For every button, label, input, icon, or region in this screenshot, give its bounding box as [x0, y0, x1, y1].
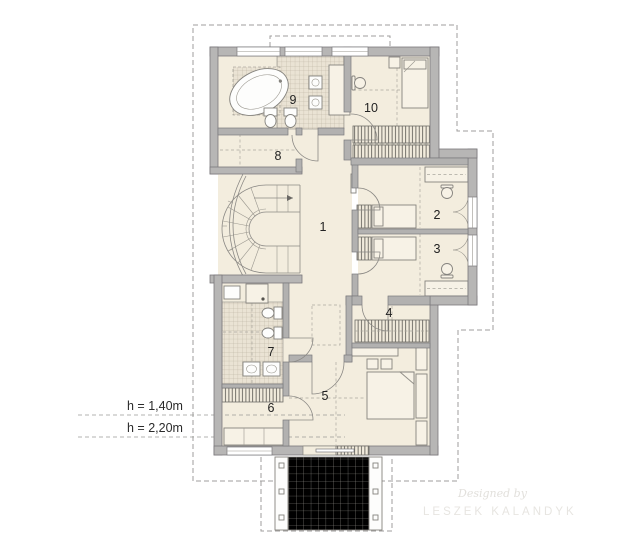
chair-icon — [441, 185, 453, 199]
balcony-door — [303, 446, 369, 455]
room-label-6: 6 — [268, 401, 275, 415]
chair-icon — [441, 264, 453, 279]
room-label-8: 8 — [275, 149, 282, 163]
bed-icon — [402, 58, 428, 108]
height-label-140: h = 1,40m — [127, 399, 183, 413]
watermark: Designed by LESZEK KALANDYK — [423, 487, 577, 518]
wardrobe-icon — [353, 126, 430, 160]
balcony — [261, 457, 392, 531]
nightstand-icon — [389, 57, 400, 68]
room-label-3: 3 — [434, 242, 441, 256]
watermark-credit: Designed by — [457, 487, 528, 500]
height-annotations: h = 1,40m h = 2,20m — [127, 399, 183, 435]
washer-icon — [224, 286, 240, 299]
wardrobe-icon — [222, 388, 283, 402]
bed-icon — [357, 205, 416, 228]
wardrobe-icon — [355, 320, 429, 342]
shower-icon — [246, 284, 268, 303]
watermark-author: LESZEK KALANDYK — [423, 506, 577, 518]
bed-icon — [357, 237, 416, 260]
room-label-7: 7 — [268, 345, 275, 359]
room-label-9: 9 — [290, 93, 297, 107]
floor-plan-drawing: 1 2 3 4 5 6 7 8 9 10 h = 1,40m h = 2,20m… — [0, 0, 638, 556]
room-label-1: 1 — [320, 220, 327, 234]
height-label-220: h = 2,20m — [127, 421, 183, 435]
floor-plan-canvas: 1 2 3 4 5 6 7 8 9 10 h = 1,40m h = 2,20m… — [0, 0, 638, 556]
room-label-4: 4 — [386, 306, 393, 320]
room-label-2: 2 — [434, 208, 441, 222]
cabinet-row-icon — [224, 428, 284, 445]
room-label-10: 10 — [364, 101, 378, 115]
room-label-5: 5 — [322, 389, 329, 403]
